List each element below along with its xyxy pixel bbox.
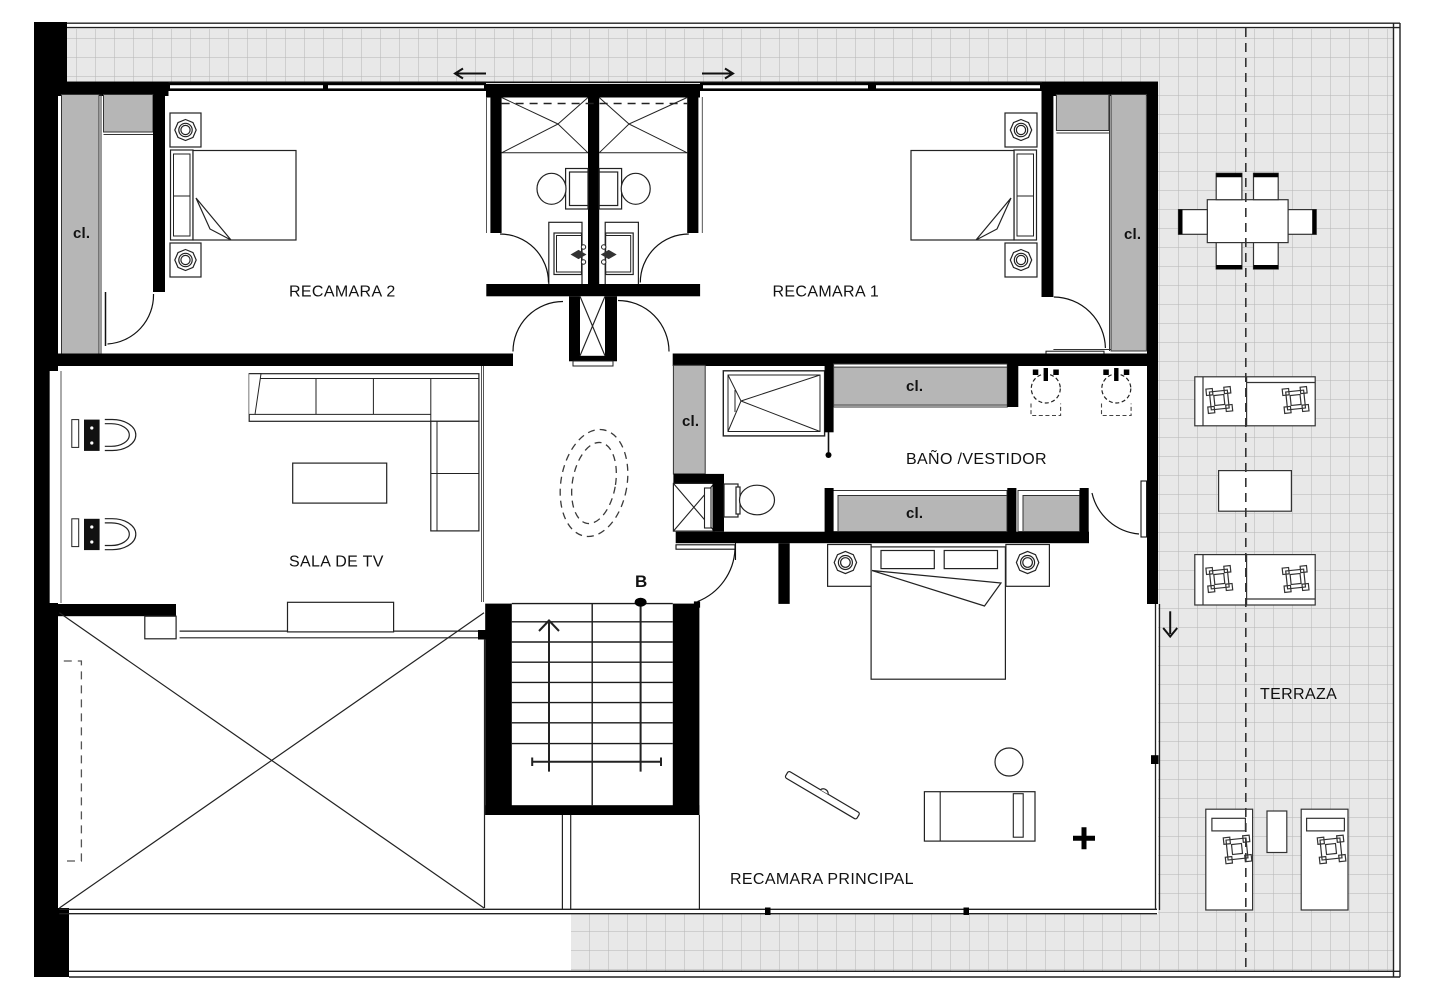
svg-text:cl.: cl. bbox=[906, 505, 923, 522]
svg-text:SALA DE TV: SALA DE TV bbox=[289, 554, 384, 571]
svg-text:RECAMARA 2: RECAMARA 2 bbox=[289, 284, 396, 301]
svg-text:RECAMARA PRINCIPAL: RECAMARA PRINCIPAL bbox=[730, 871, 914, 888]
svg-text:BAÑO /VESTIDOR: BAÑO /VESTIDOR bbox=[906, 448, 1047, 468]
svg-text:TERRAZA: TERRAZA bbox=[1260, 686, 1337, 703]
svg-text:cl.: cl. bbox=[73, 225, 90, 242]
svg-text:cl.: cl. bbox=[682, 413, 699, 430]
svg-text:B: B bbox=[635, 572, 647, 591]
svg-text:cl.: cl. bbox=[906, 378, 923, 395]
svg-text:cl.: cl. bbox=[1124, 226, 1141, 243]
svg-text:RECAMARA 1: RECAMARA 1 bbox=[773, 284, 880, 301]
